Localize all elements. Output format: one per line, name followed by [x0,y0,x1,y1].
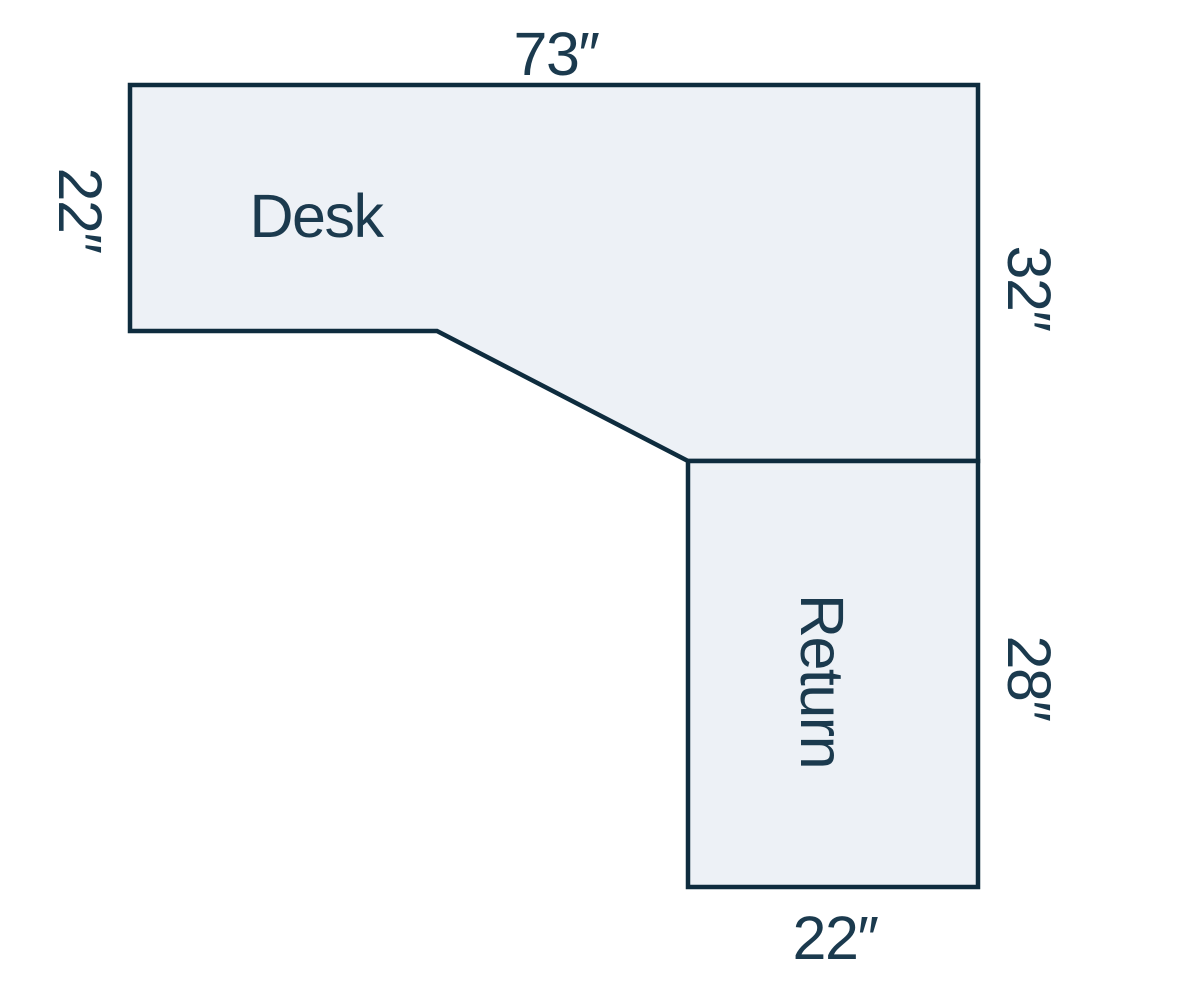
return-width-dimension: 22″ [793,904,879,972]
diagram-canvas: Desk Return 73″ 22″ 32″ 28″ 22″ [0,0,1200,1000]
desk-shape [130,85,978,461]
desk-depth-right-dimension: 32″ [995,246,1063,332]
return-label: Return [788,594,856,768]
desk-label: Desk [250,182,385,250]
desk-plan-diagram: Desk Return 73″ 22″ 32″ 28″ 22″ [0,0,1200,1000]
desk-width-dimension: 73″ [514,20,600,88]
return-length-dimension: 28″ [995,636,1063,722]
desk-depth-left-dimension: 22″ [46,168,114,254]
